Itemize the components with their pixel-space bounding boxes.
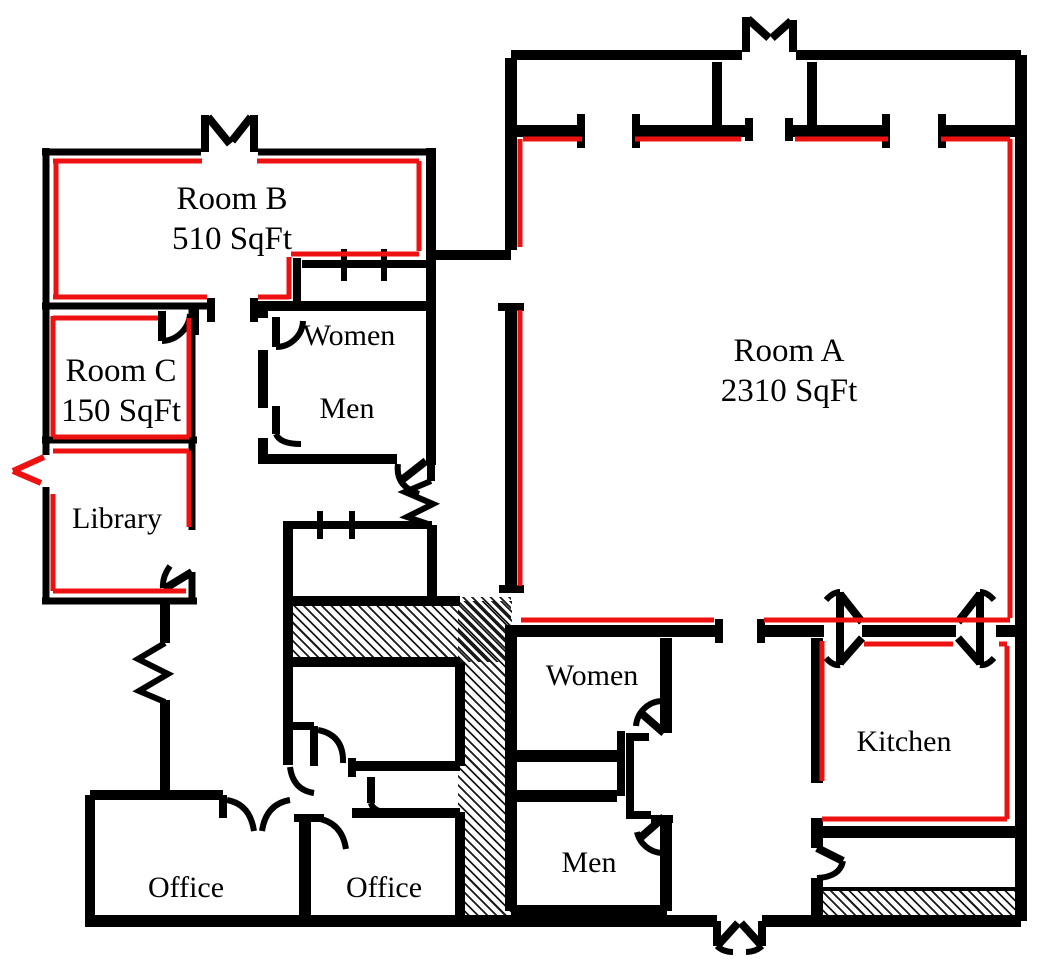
room-c-area: 150 SqFt: [61, 391, 181, 431]
room-label-room-c: Room C 150 SqFt: [61, 351, 181, 431]
walls-layer: [0, 0, 1042, 963]
room-c-name: Room C: [61, 351, 181, 391]
red-exit-door-icon: [13, 457, 44, 483]
door-leaves: [162, 19, 980, 944]
room-label-library: Library: [72, 499, 162, 539]
room-label-room-a: Room A 2310 SqFt: [721, 331, 858, 411]
door-jambs: [195, 17, 942, 946]
room-b-name: Room B: [172, 179, 292, 219]
room-label-kitchen: Kitchen: [857, 722, 952, 762]
room-label-office-right: Office: [346, 868, 422, 908]
floor-plan: Room B 510 SqFt Room C 150 SqFt Room A 2…: [0, 0, 1042, 963]
room-b-area: 510 SqFt: [172, 219, 292, 259]
room-label-women-upper: Women: [303, 316, 396, 356]
room-a-name: Room A: [721, 331, 858, 371]
room-label-men-lower: Men: [562, 843, 617, 883]
room-a-area: 2310 SqFt: [721, 371, 858, 411]
room-label-room-b: Room B 510 SqFt: [172, 179, 292, 259]
room-label-men-upper: Men: [320, 389, 375, 429]
room-label-office-left: Office: [148, 868, 224, 908]
room-label-women-lower: Women: [546, 656, 639, 696]
